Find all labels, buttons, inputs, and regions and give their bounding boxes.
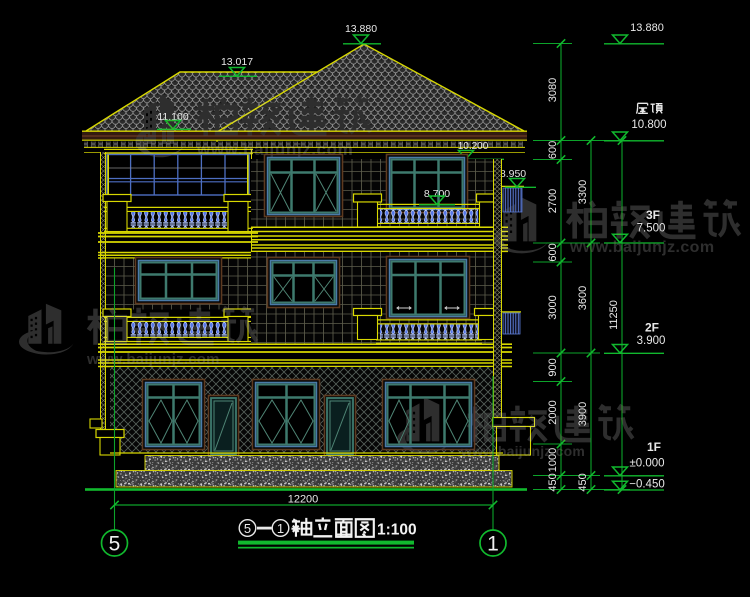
svg-text:8.700: 8.700 [424,188,450,200]
svg-text:5: 5 [109,533,121,556]
svg-text:13.880: 13.880 [630,22,664,34]
svg-text:www.baijunjz.com: www.baijunjz.com [86,351,220,368]
svg-text:600: 600 [547,243,559,261]
svg-text:www.baijunjz.com: www.baijunjz.com [196,140,353,159]
svg-text:1F: 1F [647,440,661,454]
svg-text:10.800: 10.800 [631,119,666,131]
svg-text:1: 1 [277,521,284,536]
svg-text:600: 600 [547,141,559,159]
svg-text:13.017: 13.017 [221,56,253,68]
svg-text:www.baijunjz.com: www.baijunjz.com [460,443,585,459]
svg-text:1:100: 1:100 [377,522,417,539]
svg-text:1: 1 [487,533,499,556]
svg-text:www.baijunjz.com: www.baijunjz.com [569,239,715,256]
svg-text:3.900: 3.900 [637,335,666,347]
svg-text:900: 900 [547,358,559,376]
svg-text:12200: 12200 [288,494,319,506]
svg-text:±0.000: ±0.000 [629,458,664,470]
svg-text:3600: 3600 [577,286,589,310]
svg-text:2700: 2700 [547,189,559,213]
svg-text:450: 450 [577,473,589,491]
svg-text:13.880: 13.880 [345,23,377,35]
svg-text:3900: 3900 [577,402,589,426]
svg-text:2F: 2F [645,321,659,335]
svg-text:450: 450 [547,473,559,491]
svg-text:−0.450: −0.450 [629,479,665,491]
svg-text:3080: 3080 [547,78,559,102]
svg-text:5: 5 [244,521,251,536]
svg-text:11250: 11250 [608,300,620,330]
svg-text:3000: 3000 [547,295,559,319]
svg-text:3300: 3300 [577,180,589,204]
